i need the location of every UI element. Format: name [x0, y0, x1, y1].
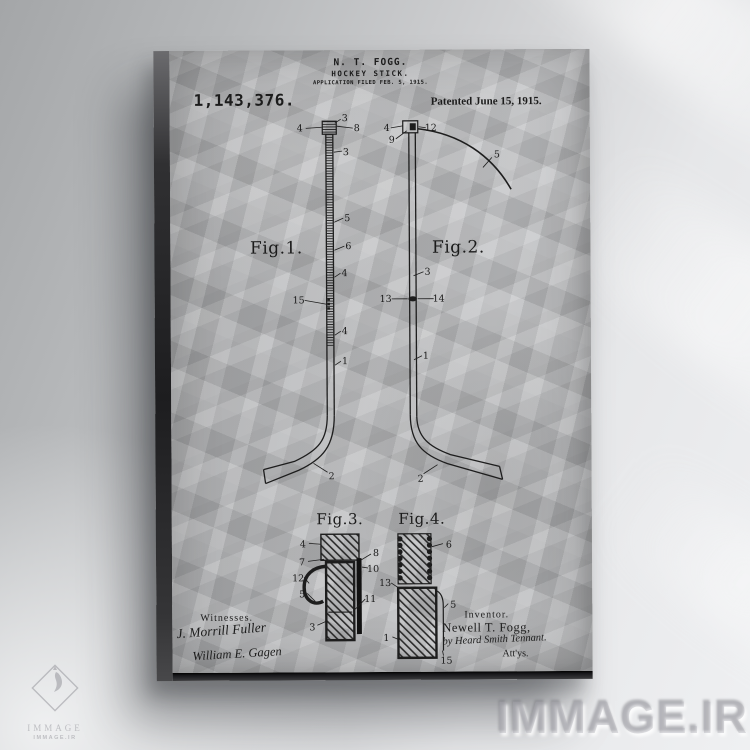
part-label: 10	[367, 564, 379, 575]
inventor-heading: Inventor.	[464, 609, 509, 620]
part-label: 5	[450, 600, 456, 611]
fig2-caption: Fig.2.	[432, 237, 485, 257]
part-label: 8	[373, 548, 379, 559]
figure-1-hockey-stick-front	[262, 119, 355, 483]
part-label: 4	[342, 326, 348, 337]
part-label: 13	[380, 294, 392, 305]
fig4-caption: Fig.4.	[398, 510, 445, 528]
canvas-body: N. T. FOGG. HOCKEY STICK. APPLICATION FI…	[169, 49, 592, 681]
part-label: 8	[354, 123, 360, 134]
part-label: 3	[424, 267, 430, 278]
part-label: 4	[300, 539, 306, 550]
part-label: 3	[342, 113, 348, 124]
immage-logo: IMMAGE IMMAGE.IR	[16, 660, 94, 741]
fig1-caption: Fig.1.	[250, 238, 303, 258]
part-label: 14	[433, 294, 445, 305]
part-label: 7	[299, 557, 305, 568]
part-label: 12	[292, 573, 304, 584]
part-label: 9	[389, 135, 395, 146]
product-photo: { "palette": { "wall_light": "#eff0f2", …	[0, 0, 750, 750]
part-label: 15	[440, 656, 452, 667]
figure-4-shaft-ferrule-section	[391, 534, 449, 658]
part-label: 1	[383, 633, 389, 644]
light-streak	[593, 451, 750, 729]
part-label: 3	[309, 622, 315, 633]
part-label: 6	[446, 540, 452, 551]
flame-icon	[54, 672, 62, 692]
attorneys-suffix: Att'ys.	[502, 648, 528, 659]
part-label: 1	[342, 356, 348, 367]
immage-watermark: IMMAGE.IR	[497, 692, 749, 744]
canvas-print: N. T. FOGG. HOCKEY STICK. APPLICATION FI…	[153, 49, 592, 681]
part-label: 5	[494, 149, 500, 160]
part-label: 2	[329, 471, 335, 482]
part-label: 2	[418, 474, 424, 485]
part-label: 12	[425, 123, 437, 134]
part-label: 15	[293, 295, 305, 306]
immage-logo-mark	[25, 660, 85, 718]
part-label: 4	[384, 123, 390, 134]
patent-content: N. T. FOGG. HOCKEY STICK. APPLICATION FI…	[169, 49, 592, 673]
part-label: 6	[345, 241, 351, 252]
patent-drawing: Fig.1. 3 4 8 3 5 6 4 15 4 1 2	[169, 49, 592, 673]
part-label: 11	[364, 594, 376, 605]
part-label: 4	[341, 268, 347, 279]
part-label: 3	[343, 147, 349, 158]
part-label: 1	[423, 351, 429, 362]
patent-paper: N. T. FOGG. HOCKEY STICK. APPLICATION FI…	[169, 49, 592, 673]
logo-brand-text: IMMAGE	[16, 723, 94, 733]
logo-site-text: IMMAGE.IR	[16, 735, 94, 741]
part-label: 13	[379, 578, 391, 589]
fig3-caption: Fig.3.	[316, 510, 363, 528]
figure-2-hockey-stick-side	[391, 120, 513, 480]
part-label: 5	[299, 589, 305, 600]
part-label: 4	[297, 123, 303, 134]
part-label: 5	[344, 213, 350, 224]
